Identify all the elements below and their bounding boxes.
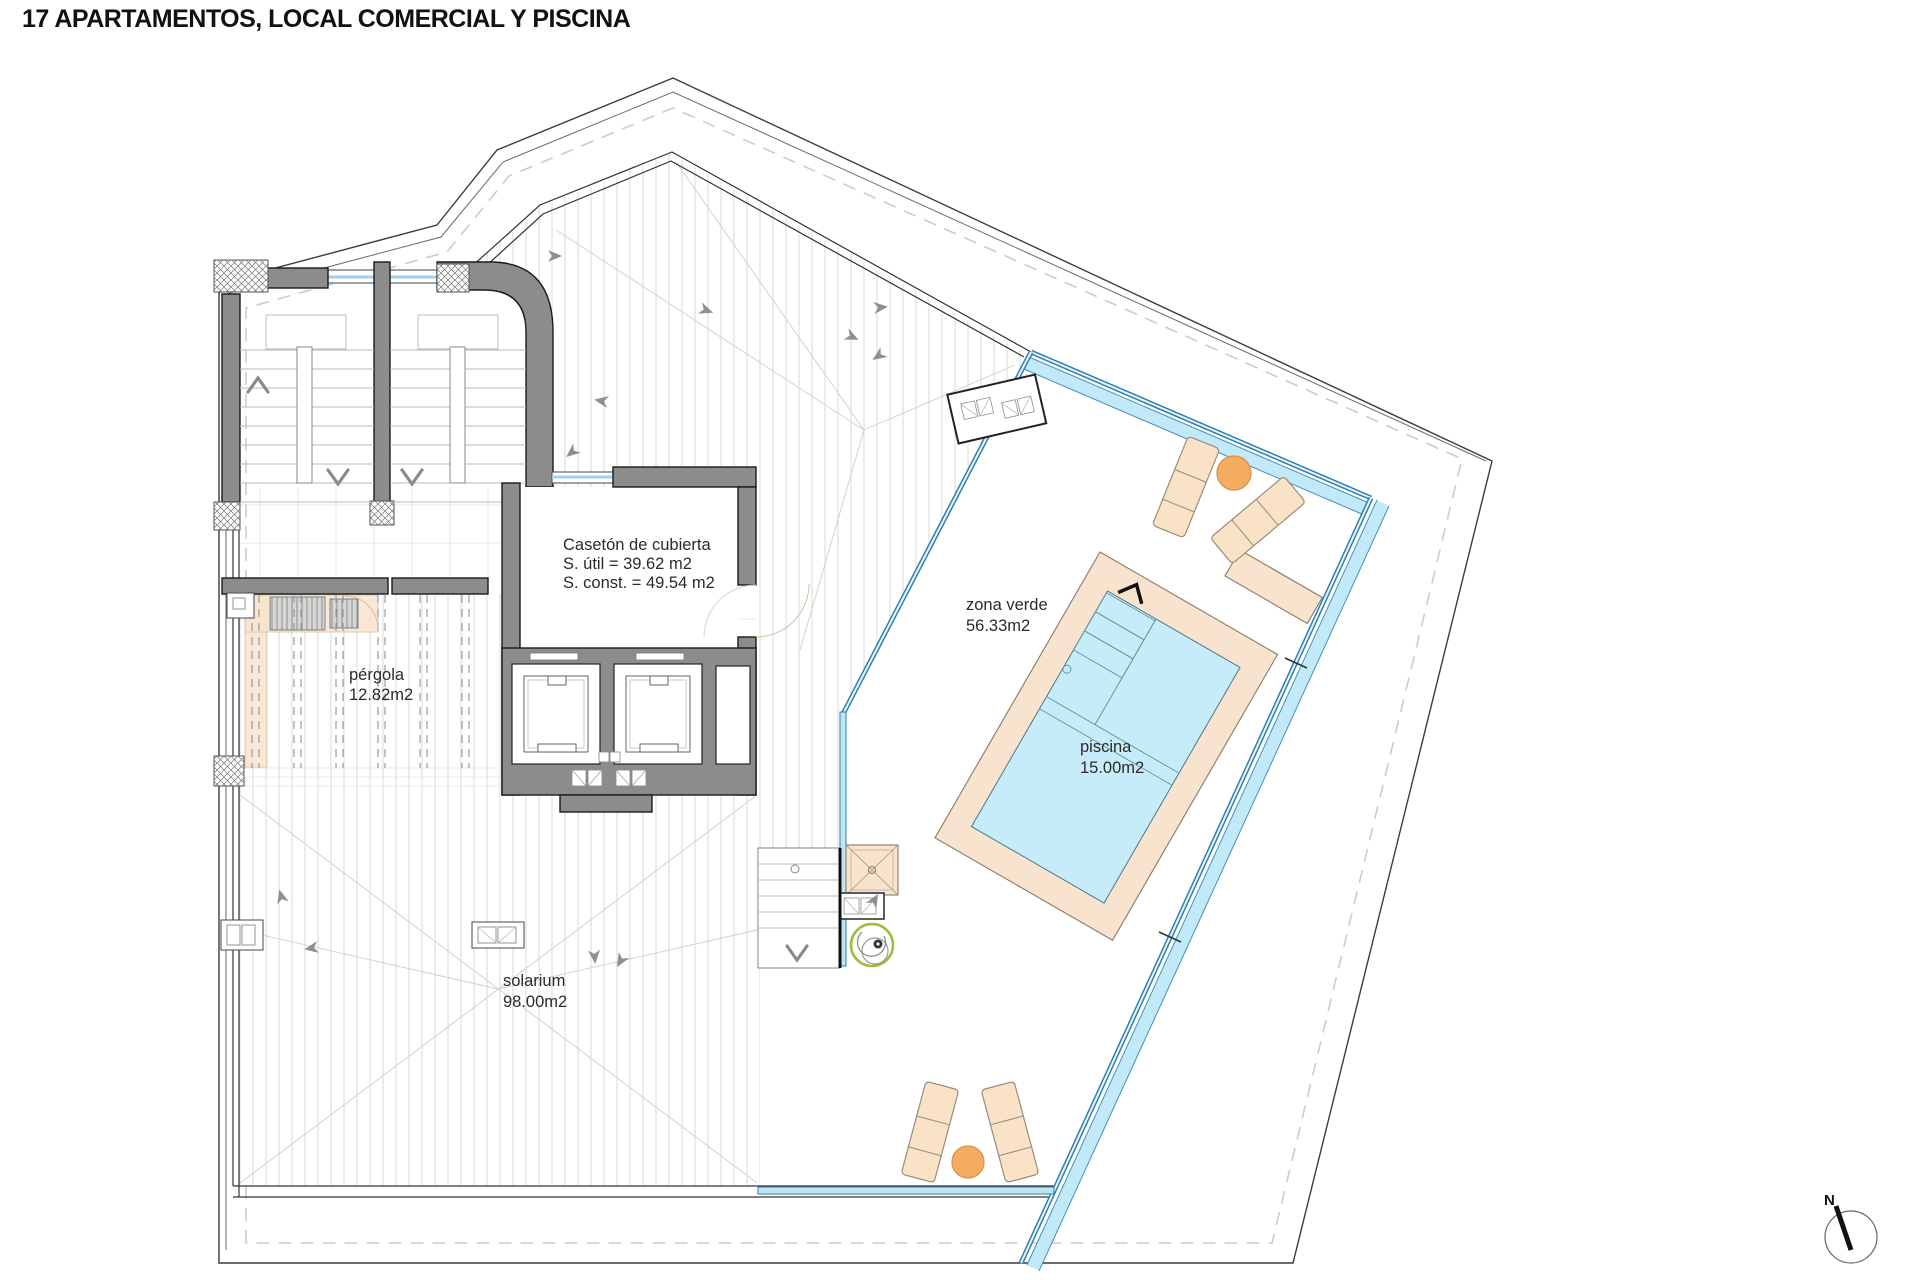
wall	[560, 795, 652, 812]
column	[214, 502, 240, 530]
wall	[738, 487, 756, 585]
elevator-shaft	[614, 664, 702, 764]
floor-plan-page: Casetón de cubierta S. útil = 39.62 m2 S…	[0, 0, 1920, 1280]
label-caseton-util: S. útil = 39.62 m2	[563, 555, 692, 573]
floor-plan-drawing: Casetón de cubierta S. útil = 39.62 m2 S…	[0, 0, 1920, 1280]
vent-slot	[530, 653, 578, 660]
terrace-access-stair	[758, 848, 840, 968]
label-zona-verde: zona verde	[966, 596, 1048, 614]
sun-loungers-bottom	[901, 1081, 1039, 1183]
wall	[613, 467, 756, 487]
stair-opening	[418, 315, 498, 349]
column	[214, 756, 244, 786]
outdoor-shower	[851, 924, 893, 966]
label-pergola: pérgola	[349, 666, 405, 684]
pergola-slat-panel	[330, 599, 358, 628]
stair-handrail	[297, 347, 312, 483]
stair-opening	[266, 315, 346, 349]
stair-handrail	[450, 347, 465, 483]
label-zona-verde-area: 56.33m2	[966, 617, 1030, 635]
stair-up-arrow	[248, 378, 268, 392]
elevator-door	[548, 676, 566, 685]
pergola-slat-panel	[270, 597, 325, 630]
label-solarium: solarium	[503, 972, 565, 990]
wall	[392, 578, 488, 594]
label-pergola-area: 12.82m2	[349, 686, 413, 704]
north-arrow: N	[1824, 1192, 1877, 1263]
side-table	[952, 1146, 984, 1178]
north-label: N	[1824, 1192, 1835, 1209]
side-table	[1217, 456, 1251, 490]
counterweight	[640, 744, 678, 752]
page-title: 17 APARTAMENTOS, LOCAL COMERCIAL Y PISCI…	[22, 5, 631, 33]
column	[437, 264, 469, 292]
planter-box	[846, 845, 898, 895]
vent-slot	[636, 653, 684, 660]
label-caseton-const: S. const. = 49.54 m2	[563, 574, 715, 592]
terrace-glazing	[758, 1187, 1054, 1194]
stair-down-arrow	[402, 470, 422, 484]
wall	[222, 578, 388, 594]
stair-down-arrow	[328, 470, 348, 484]
wall	[222, 294, 240, 502]
column	[370, 501, 394, 525]
deck-channel-connector	[1225, 550, 1322, 623]
column	[214, 260, 268, 292]
label-solarium-area: 98.00m2	[503, 993, 567, 1011]
label-piscina: piscina	[1080, 738, 1132, 756]
counterweight	[538, 744, 576, 752]
label-caseton: Casetón de cubierta	[563, 536, 712, 554]
label-piscina-area: 15.00m2	[1080, 759, 1144, 777]
roof-vent	[227, 593, 254, 618]
elevator-door	[650, 676, 668, 685]
wall	[374, 262, 390, 502]
service-room	[716, 666, 750, 764]
elevator-shaft	[512, 664, 600, 764]
compass-circle	[1825, 1211, 1877, 1263]
